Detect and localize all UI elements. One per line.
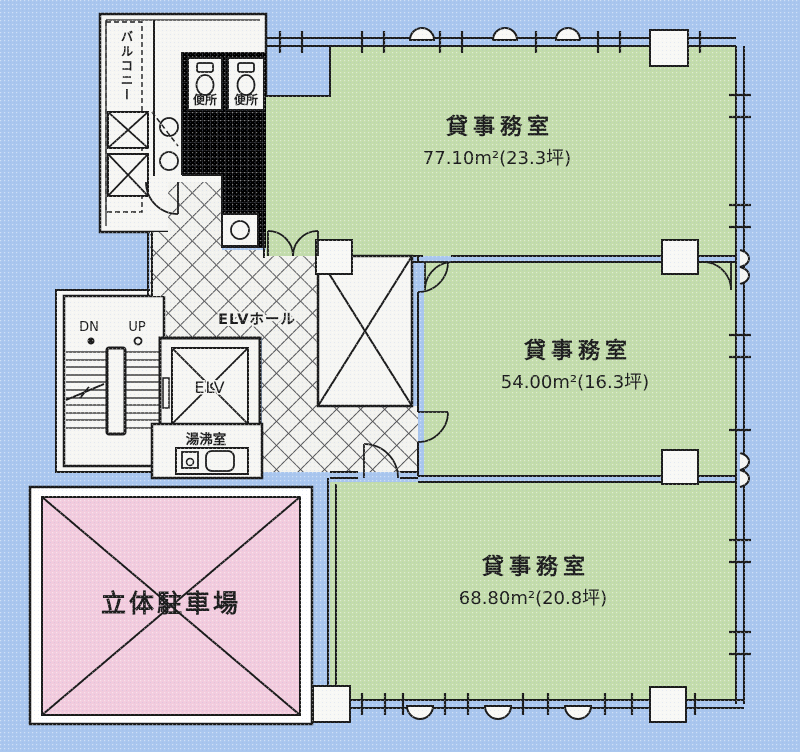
floor-plan-page: 貸事務室 77.10m²(23.3坪) 貸事務室 54.00m²(16.3坪) … — [0, 0, 800, 752]
scan-texture-overlay — [0, 0, 800, 752]
floor-plan-drawing: 貸事務室 77.10m²(23.3坪) 貸事務室 54.00m²(16.3坪) … — [0, 0, 800, 752]
